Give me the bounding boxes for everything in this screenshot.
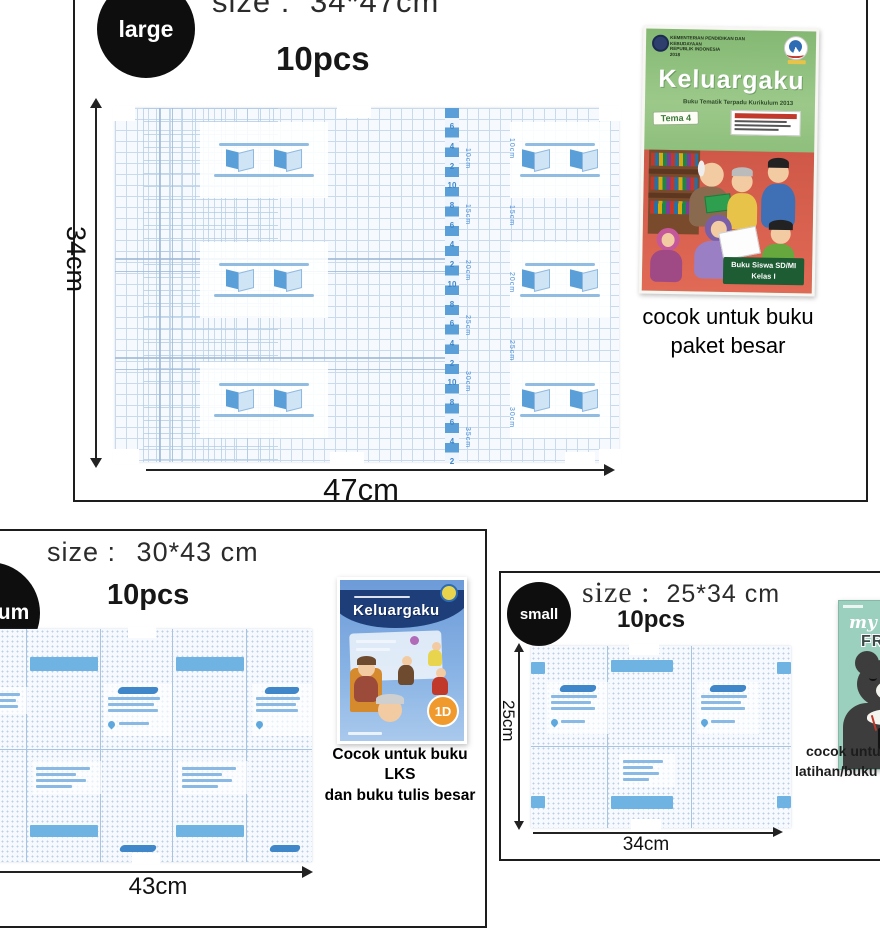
medium-sample-book: Keluargaku 1D (337, 577, 467, 744)
large-height-label: 34cm (60, 226, 91, 292)
sheet-print-block (0, 687, 28, 714)
water-drop-icon (550, 718, 560, 728)
book-icon (273, 149, 303, 171)
ruler-cm-label: 25cm (464, 315, 471, 336)
small-height-label: 25cm (498, 700, 518, 742)
ministry-text: KEMENTERIAN PENDIDIKAN DAN KEBUDAYAAN RE… (670, 35, 765, 60)
ruler-number: 2 (445, 255, 459, 275)
small-book-title-word2: FRIENDS (861, 633, 880, 651)
ruler-number: 4 (445, 137, 459, 157)
school-property-sticker (730, 110, 800, 136)
ruler-number: 8 (445, 196, 459, 216)
ruler-number: 6 (445, 314, 459, 334)
sheet-label-box (510, 362, 610, 438)
medium-book-title: Keluargaku (353, 602, 440, 619)
sheet-ruler-labels-col2: 10cm15cm20cm25cm30cm (508, 138, 515, 428)
book-icon (521, 269, 551, 291)
medium-width-label: 43cm (118, 873, 198, 901)
small-caption-line1: cocok untuk buku (806, 743, 880, 759)
large-size-text: size : 34*47cm (212, 0, 439, 20)
sheet-print-block (32, 761, 102, 794)
ruler-number: 10 (445, 373, 459, 393)
ruler-number: 4 (445, 334, 459, 354)
ruler-cm-label: 15cm (464, 204, 471, 225)
medium-cover-sheet (0, 629, 312, 862)
book-icon (521, 389, 551, 411)
ruler-number: 6 (445, 117, 459, 137)
small-size-value: 25*34 cm (666, 580, 780, 608)
ruler-cm-label: 20cm (464, 260, 471, 281)
book-icon (569, 389, 599, 411)
large-width-label: 47cm (296, 472, 426, 508)
sheet-label-box (200, 362, 328, 438)
medium-caption: Cocok untuk buku LKS dan buku tulis besa… (318, 745, 482, 806)
large-book-title: Keluargaku (658, 65, 805, 97)
large-size-label: size : (212, 0, 290, 19)
large-book-footer: Buku Siswa SD/MI Kelas I (723, 257, 804, 285)
book-icon (569, 269, 599, 291)
sheet-print-block (104, 684, 172, 736)
publisher-logo-icon (440, 584, 458, 602)
ruler-number: 10 (445, 275, 459, 295)
large-height-arrow (95, 106, 97, 460)
sheet-print-block (619, 754, 675, 787)
sheet-ruler-numbers: 642108642108642108642 (445, 117, 459, 471)
ruler-number: 6 (445, 215, 459, 235)
large-width-arrow (146, 469, 608, 471)
ruler-number: 6 (445, 412, 459, 432)
ruler-cm-label: 20cm (508, 272, 515, 293)
large-badge-label: large (119, 16, 174, 43)
medium-badge-label: medium (0, 601, 29, 625)
ruler-cm-label: 25cm (508, 340, 515, 361)
ruler-number: 2 (445, 156, 459, 176)
sheet-label-box (200, 122, 328, 198)
sheet-print-block (547, 682, 609, 734)
ministry-logo-icon (652, 35, 669, 52)
ruler-number: 8 (445, 294, 459, 314)
large-caption: cocok untuk buku paket besar (626, 302, 830, 360)
large-sample-book: KEMENTERIAN PENDIDIKAN DAN KEBUDAYAAN RE… (639, 25, 820, 296)
large-qty: 10pcs (276, 40, 370, 78)
small-size-label: size : (582, 576, 650, 609)
small-height-arrow (518, 649, 520, 825)
sheet-print-block (178, 761, 248, 794)
sheet-ruler-labels-col1: 10cm15cm20cm25cm30cm35cm (464, 148, 471, 448)
ruler-cm-label: 30cm (464, 371, 471, 392)
sheet-print-block (697, 682, 759, 734)
book-icon (225, 389, 255, 411)
book-icon (225, 269, 255, 291)
small-size-text: size : 25*34 cm (582, 576, 780, 610)
curriculum-globe-icon (784, 36, 808, 60)
ruler-number: 4 (445, 432, 459, 452)
water-drop-icon (255, 720, 265, 730)
book-icon (225, 149, 255, 171)
ruler-cm-label: 15cm (508, 205, 515, 226)
ruler-number: 8 (445, 393, 459, 413)
large-book-subtitle: Buku Tematik Terpadu Kurikulum 2013 (683, 99, 793, 107)
medium-size-value: 30*43 cm (137, 537, 259, 567)
water-drop-icon (700, 718, 710, 728)
small-book-title-script: my (849, 613, 877, 633)
small-caption-line2: latihan/buku tulis (795, 763, 880, 779)
small-width-label: 34cm (606, 834, 686, 856)
ruler-number: 4 (445, 235, 459, 255)
sheet-label-box (200, 242, 328, 318)
water-drop-icon (107, 720, 117, 730)
ruler-number: 2 (445, 353, 459, 373)
small-badge-label: small (520, 606, 558, 623)
book-icon (273, 269, 303, 291)
large-size-value: 34*47cm (310, 0, 439, 19)
small-badge: small (507, 582, 571, 646)
product-collage: { "colors": { "frame": "#1d1d1d", "badge… (0, 0, 880, 880)
ruler-cm-label: 10cm (508, 138, 515, 159)
medium-size-text: size : 30*43 cm (47, 537, 259, 568)
book-icon (273, 389, 303, 411)
small-cover-sheet (531, 646, 791, 828)
ruler-cm-label: 10cm (464, 148, 471, 169)
large-cover-sheet: 642108642108642108642 10cm15cm20cm25cm30… (115, 108, 619, 462)
ruler-number: 10 (445, 176, 459, 196)
grade-badge: 1D (427, 695, 459, 727)
medium-size-label: size : (47, 537, 116, 567)
book-icon (521, 149, 551, 171)
sheet-label-box (510, 242, 610, 318)
ruler-cm-label: 30cm (508, 407, 515, 428)
book-icon (569, 149, 599, 171)
ruler-cm-label: 35cm (464, 427, 471, 448)
medium-qty: 10pcs (107, 579, 189, 612)
sheet-print-block (252, 684, 312, 736)
sheet-label-box (510, 122, 610, 198)
tema-label: Tema 4 (653, 111, 700, 126)
small-qty: 10pcs (617, 606, 685, 634)
